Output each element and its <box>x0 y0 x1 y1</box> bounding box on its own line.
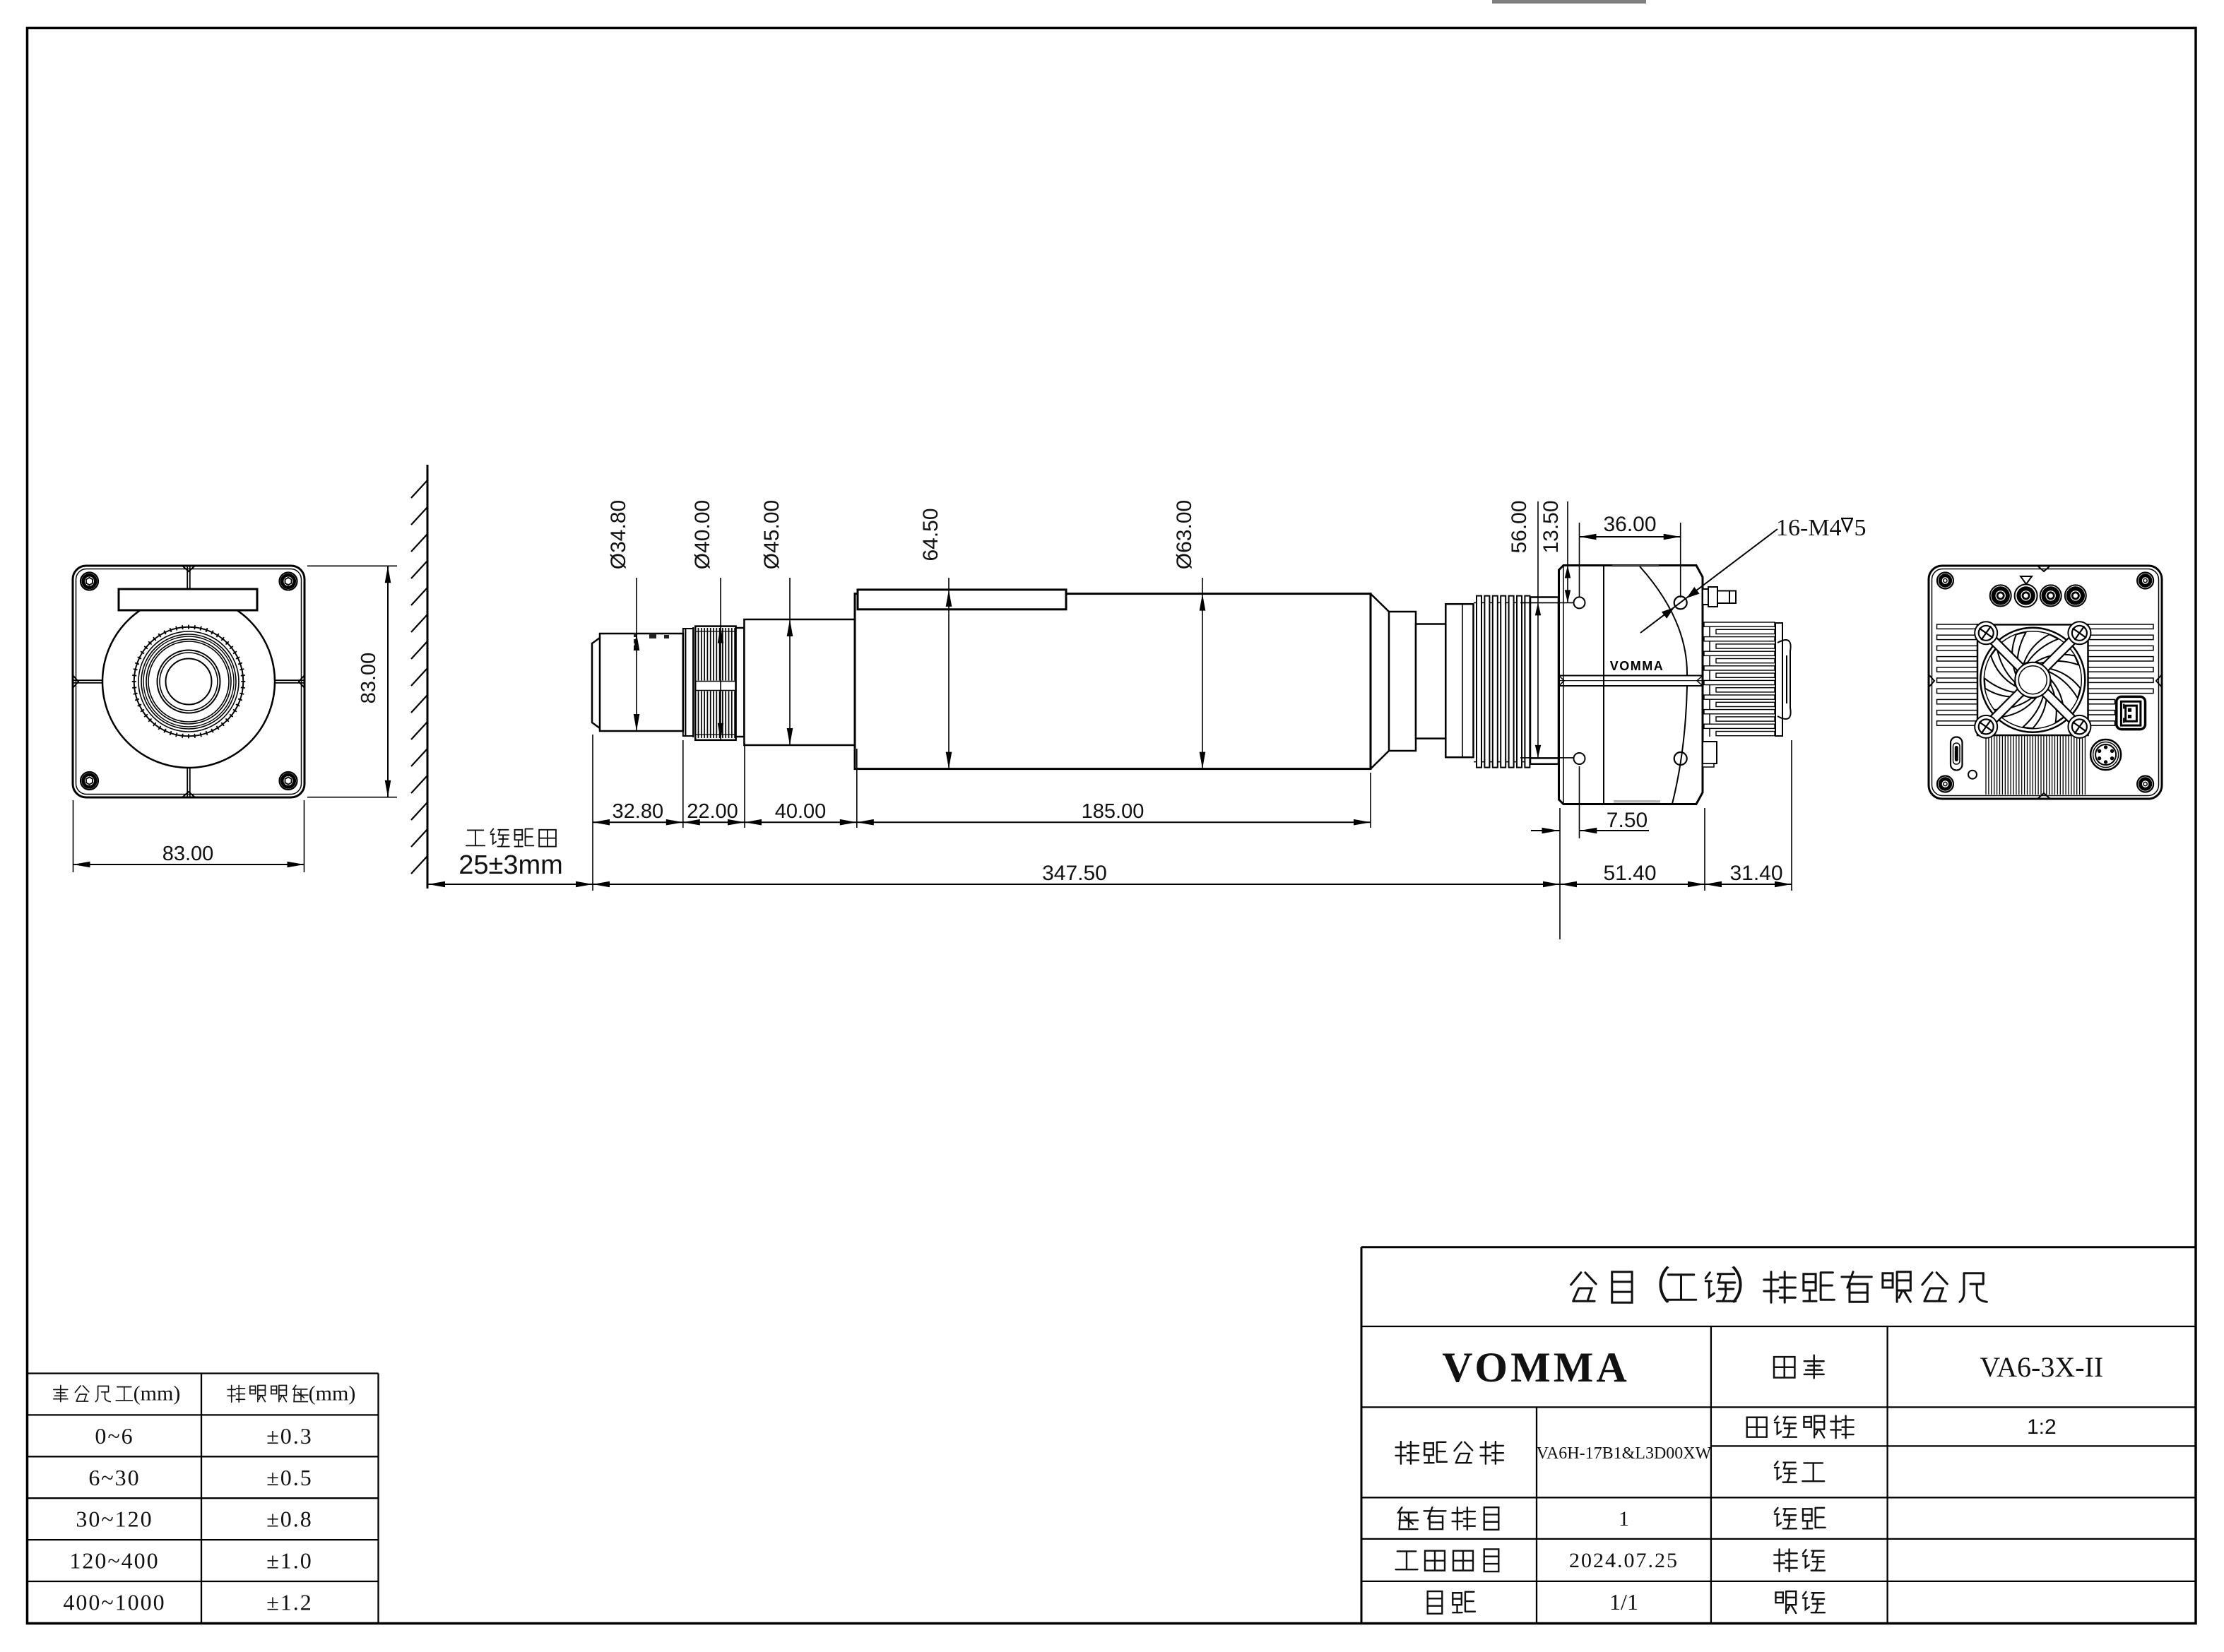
svg-text:16-M4: 16-M4 <box>1776 515 1842 541</box>
svg-text:25±3mm: 25±3mm <box>459 850 563 880</box>
svg-text:2024.07.25: 2024.07.25 <box>1569 1549 1679 1572</box>
svg-text:±1.2: ±1.2 <box>266 1590 313 1615</box>
svg-text:30~120: 30~120 <box>76 1507 153 1532</box>
svg-text:400~1000: 400~1000 <box>63 1590 165 1615</box>
svg-text:±0.5: ±0.5 <box>266 1465 313 1490</box>
svg-text:40.00: 40.00 <box>775 800 827 823</box>
svg-text:±0.8: ±0.8 <box>266 1507 313 1532</box>
svg-text:VOMMA: VOMMA <box>1442 1344 1629 1391</box>
svg-text:6~30: 6~30 <box>88 1465 140 1490</box>
svg-text:1:2: 1:2 <box>2027 1415 2057 1439</box>
svg-text:5: 5 <box>1855 515 1867 541</box>
svg-text:(mm): (mm) <box>309 1382 356 1406</box>
svg-text:Ø63.00: Ø63.00 <box>1173 500 1196 569</box>
svg-text:32.80: 32.80 <box>613 800 664 823</box>
svg-text:13.50: 13.50 <box>1539 500 1563 553</box>
svg-text:±0.3: ±0.3 <box>266 1423 313 1449</box>
svg-text:120~400: 120~400 <box>69 1548 159 1574</box>
svg-text:1: 1 <box>1619 1507 1629 1531</box>
svg-text:±1.0: ±1.0 <box>266 1548 313 1574</box>
svg-text:VA6-3X-II: VA6-3X-II <box>1980 1351 2103 1383</box>
svg-text:51.40: 51.40 <box>1603 862 1656 885</box>
svg-text:Ø40.00: Ø40.00 <box>691 500 714 569</box>
svg-text:56.00: 56.00 <box>1508 500 1531 553</box>
svg-text:347.50: 347.50 <box>1042 862 1107 885</box>
svg-text:36.00: 36.00 <box>1603 513 1656 536</box>
svg-text:22.00: 22.00 <box>687 800 738 823</box>
svg-text:VA6H-17B1&L3D00XW: VA6H-17B1&L3D00XW <box>1537 1444 1712 1463</box>
svg-text:185.00: 185.00 <box>1082 800 1144 823</box>
svg-text:（: （ <box>1632 1265 1671 1308</box>
svg-text:Ø34.80: Ø34.80 <box>607 500 630 569</box>
svg-text:31.40: 31.40 <box>1729 862 1782 885</box>
svg-text:83.00: 83.00 <box>357 653 380 704</box>
svg-text:83.00: 83.00 <box>162 843 214 865</box>
svg-text:7.50: 7.50 <box>1607 809 1648 832</box>
svg-text:1/1: 1/1 <box>1609 1589 1638 1615</box>
svg-text:VOMMA: VOMMA <box>1610 659 1664 673</box>
svg-text:）: ） <box>1730 1265 1769 1308</box>
svg-text:Ø45.00: Ø45.00 <box>760 500 783 569</box>
svg-text:64.50: 64.50 <box>919 508 942 561</box>
svg-text:(mm): (mm) <box>134 1382 181 1406</box>
svg-text:0~6: 0~6 <box>95 1423 134 1449</box>
